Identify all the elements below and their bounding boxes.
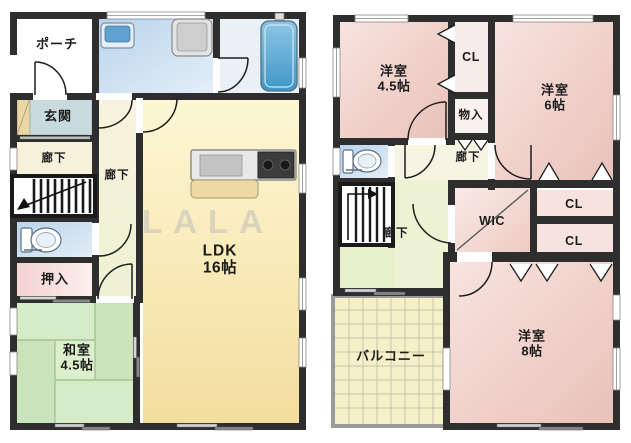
label-hallway2f-b: 廊下	[384, 228, 409, 241]
label-closet-top: CL	[462, 50, 480, 64]
label-bedroom8: 洋室8帖	[518, 329, 546, 358]
room-landing-2f	[340, 247, 395, 288]
label-oshiire: 押入	[41, 273, 69, 288]
label-bedroom45: 洋室4.5帖	[377, 64, 410, 93]
label-bedroom6: 洋室6帖	[541, 83, 569, 112]
bathtub-icon	[261, 13, 297, 91]
sink-icon	[101, 23, 134, 48]
label-storage: 物入	[459, 110, 484, 123]
label-hallway2f-a: 廊下	[456, 152, 481, 165]
label-ldk: LDK16帖	[203, 243, 238, 278]
label-hallway1f-b: 廊下	[105, 170, 130, 183]
label-hallway1f-a: 廊下	[42, 153, 67, 166]
label-closet-a: CL	[565, 197, 583, 211]
washing-machine-icon	[172, 19, 212, 56]
label-closet-b: CL	[565, 234, 583, 248]
toilet-2f-icon	[343, 150, 381, 173]
label-porch: ポーチ	[36, 38, 78, 53]
room-porch	[17, 19, 92, 93]
floorplan-image: LALA ポーチ 玄関 廊下 廊下 押入 和室4.5帖 LDK16帖 洋室4.5…	[0, 0, 631, 443]
watermark: LALA	[142, 203, 274, 241]
label-washitsu: 和室4.5帖	[60, 343, 93, 372]
kitchen-island	[191, 180, 258, 198]
toilet-1f-icon	[21, 228, 61, 252]
floorplan-drawing	[0, 0, 631, 443]
label-balcony: バルコニー	[356, 350, 426, 365]
stairs-1f	[12, 176, 95, 216]
label-entrance: 玄関	[44, 110, 72, 125]
label-wic: WIC	[479, 214, 505, 228]
room-corridor-1f	[99, 100, 136, 303]
